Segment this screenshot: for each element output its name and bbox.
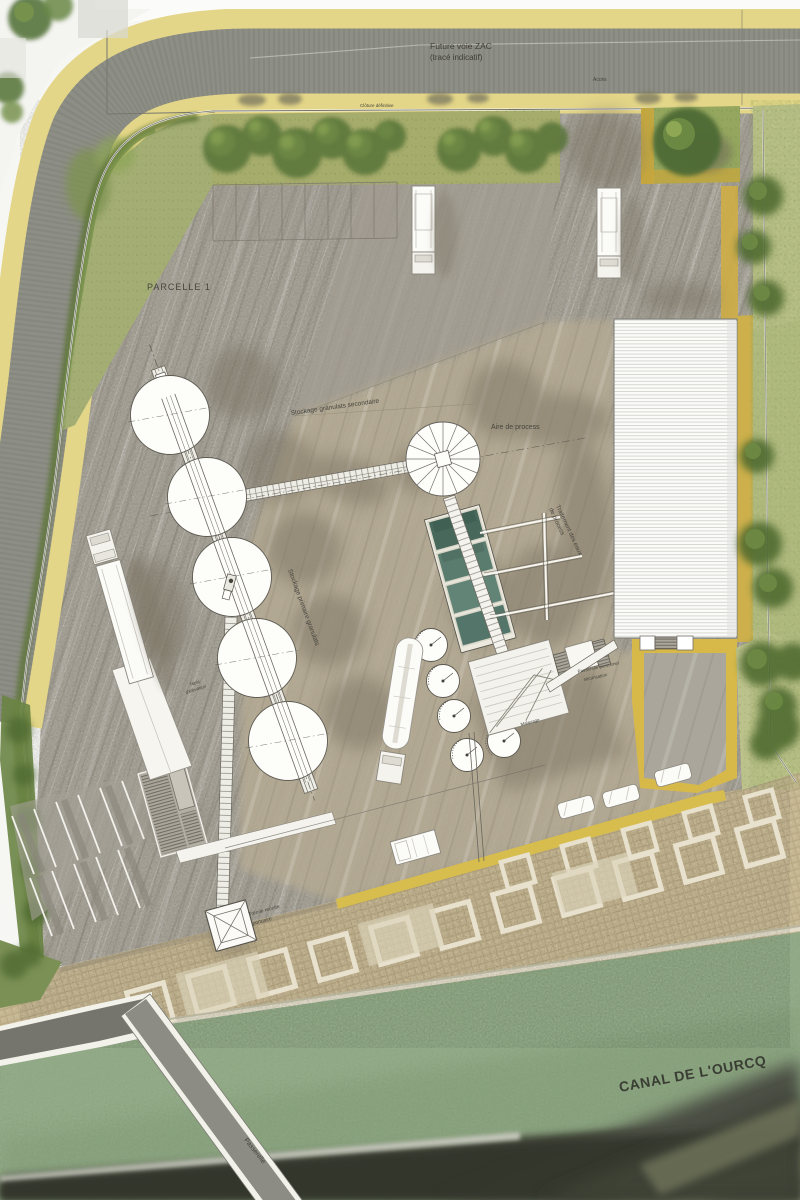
svg-text:Aire de process: Aire de process (491, 424, 540, 431)
svg-text:Future voie ZAC: Future voie ZAC (430, 41, 492, 51)
svg-text:Accès: Accès (593, 77, 607, 83)
svg-text:Clôture définitive: Clôture définitive (360, 103, 394, 108)
svg-text:PARCELLE 1: PARCELLE 1 (147, 282, 211, 292)
svg-text:(tracé indicatif): (tracé indicatif) (430, 53, 483, 62)
